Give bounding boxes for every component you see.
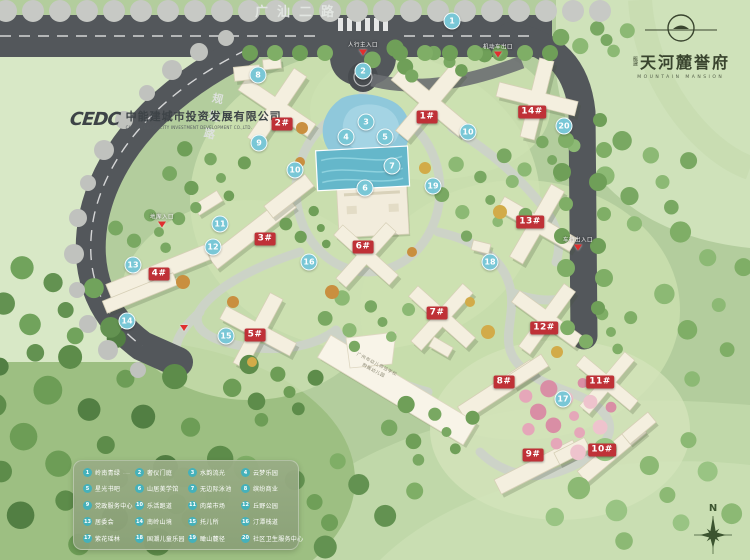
developer-logo: CEDC 中能建城市投资发展有限公司 CHINA ENERGY CITY INV… [70, 108, 282, 130]
legend-item-14: 14南岭山境 [135, 517, 172, 526]
legend-item-label: 托儿所 [200, 517, 219, 526]
amenity-marker-16: 16 [301, 254, 318, 271]
building-label-13: 13# [516, 216, 544, 229]
legend-item-number: 10 [135, 501, 144, 510]
legend-item-11: 11肉菜市场 [188, 501, 225, 510]
amenity-marker-1: 1 [444, 13, 461, 30]
legend-item-label: 山居美学馆 [147, 484, 179, 493]
entrance-label: 地库入口 [150, 213, 174, 221]
building-label-4: 4# [149, 268, 170, 281]
legend-item-note: …… [123, 471, 130, 475]
legend-item-label: 肉菜市场 [200, 501, 225, 510]
entrance-marker: 车行出入口 [563, 236, 593, 251]
amenity-marker-10: 10 [460, 124, 477, 141]
amenity-marker-8: 8 [250, 67, 267, 84]
site-plan: 广汕二路 规划路 CEDC 中能建城市投资发展有限公司 CHINA ENERGY… [0, 0, 750, 560]
legend-item-number: 9 [83, 501, 92, 510]
amenity-marker-12: 12 [205, 239, 222, 256]
legend-item-7: 7无边际泳池 [188, 484, 232, 493]
developer-name-cn: 中能建城市投资发展有限公司 [126, 108, 282, 124]
legend-item-label: 云梦乐园 [253, 468, 278, 477]
entrance-arrow-icon [158, 222, 166, 228]
amenity-marker-14: 14 [119, 313, 136, 330]
project-name: 天河麓誉府 [640, 49, 730, 73]
compass: N [692, 503, 734, 556]
legend-item-10: 10乐活跑道 [135, 501, 172, 510]
legend-item-2: 2奢仪门庭 [135, 468, 172, 477]
entrance-arrow-icon [359, 50, 367, 56]
entrance-marker: 机动车出口 [483, 43, 513, 58]
legend-item-label: 国潮儿童乐园 [147, 534, 185, 543]
legend-item-number: 16 [241, 517, 250, 526]
legend-item-label: 岭南青绿 [95, 468, 120, 477]
amenity-marker-10: 10 [287, 162, 304, 179]
building-label-8: 8# [494, 376, 515, 389]
project-emblem-icon [643, 10, 719, 46]
legend-item-number: 14 [135, 517, 144, 526]
legend-item-label: 星光书吧 [95, 484, 120, 493]
entrance-label: 人行主入口 [348, 41, 378, 49]
legend-item-9: 9党政服务中心 [83, 501, 133, 510]
legend-item-13: 13居委会 [83, 517, 114, 526]
building-label-14: 14# [518, 106, 546, 119]
entrance-arrow-icon [180, 325, 188, 331]
legend-item-number: 15 [188, 517, 197, 526]
amenity-marker-15: 15 [218, 328, 235, 345]
entrance-marker: 地库入口 [150, 213, 174, 228]
entrance-marker [180, 325, 188, 331]
entrance-arrow-icon [574, 245, 582, 251]
legend-item-8: 8缤纷商业 [241, 484, 278, 493]
project-prefix: 能建 [631, 56, 637, 66]
legend-item-number: 5 [83, 484, 92, 493]
legend-item-label: 紫花瑶林 [95, 534, 120, 543]
legend-item-number: 2 [135, 468, 144, 477]
legend-item-label: 汀潭栈道 [253, 517, 278, 526]
legend-item-1: 1岭南青绿…… [83, 468, 130, 477]
entrance-marker: 人行主入口 [348, 41, 378, 56]
legend-item-15: 15托儿所 [188, 517, 219, 526]
developer-logo-mark: CEDC [69, 109, 121, 130]
amenity-marker-5: 5 [377, 129, 394, 146]
building-label-3: 3# [255, 233, 276, 246]
legend-item-label: 瞰山麓径 [200, 534, 225, 543]
compass-n-label: N [709, 503, 717, 514]
legend: 1岭南青绿……2奢仪门庭3水韵流光4云梦乐园5星光书吧6山居美学馆7无边际泳池8… [73, 460, 299, 550]
legend-item-number: 4 [241, 468, 250, 477]
building-label-5: 5# [245, 329, 266, 342]
entrance-arrow-icon [494, 52, 502, 58]
legend-item-number: 6 [135, 484, 144, 493]
building-label-10: 10# [588, 444, 616, 457]
legend-item-label: 居委会 [95, 517, 114, 526]
amenity-marker-20: 20 [556, 118, 573, 135]
amenity-marker-11: 11 [212, 216, 229, 233]
legend-item-number: 13 [83, 517, 92, 526]
legend-item-5: 5星光书吧 [83, 484, 120, 493]
amenity-marker-19: 19 [425, 178, 442, 195]
legend-item-17: 17紫花瑶林 [83, 534, 120, 543]
legend-item-3: 3水韵流光 [188, 468, 225, 477]
legend-item-label: 奢仪门庭 [147, 468, 172, 477]
legend-item-number: 17 [83, 534, 92, 543]
building-label-7: 7# [427, 307, 448, 320]
legend-item-number: 7 [188, 484, 197, 493]
legend-item-label: 丘野公园 [253, 501, 278, 510]
legend-item-19: 19瞰山麓径 [188, 534, 225, 543]
amenity-marker-13: 13 [125, 257, 142, 274]
amenity-marker-18: 18 [482, 254, 499, 271]
legend-item-number: 1 [83, 468, 92, 477]
amenity-marker-3: 3 [358, 114, 375, 131]
entrance-label: 机动车出口 [483, 43, 513, 51]
legend-item-number: 3 [188, 468, 197, 477]
legend-item-number: 8 [241, 484, 250, 493]
legend-item-number: 11 [188, 501, 197, 510]
legend-item-number: 20 [241, 534, 250, 543]
legend-item-label: 乐活跑道 [147, 501, 172, 510]
legend-item-16: 16汀潭栈道 [241, 517, 278, 526]
amenity-marker-6: 6 [357, 180, 374, 197]
amenity-marker-4: 4 [338, 129, 355, 146]
legend-item-label: 南岭山境 [147, 517, 172, 526]
developer-name-en: CHINA ENERGY CITY INVESTMENT DEVELOPMENT… [126, 125, 282, 130]
legend-item-6: 6山居美学馆 [135, 484, 179, 493]
legend-item-label: 缤纷商业 [253, 484, 278, 493]
compass-rose-icon [692, 514, 734, 556]
legend-item-number: 18 [135, 534, 144, 543]
legend-item-number: 19 [188, 534, 197, 543]
building-label-11: 11# [586, 376, 614, 389]
building-label-2: 2# [272, 118, 293, 131]
project-name-en: MOUNTAIN MANSION [637, 75, 724, 80]
legend-item-18: 18国潮儿童乐园 [135, 534, 185, 543]
building-label-6: 6# [353, 241, 374, 254]
building-label-1: 1# [417, 111, 438, 124]
project-logo: 能建 天河麓誉府 MOUNTAIN MANSION [631, 10, 730, 80]
amenity-marker-2: 2 [355, 63, 372, 80]
legend-item-number: 12 [241, 501, 250, 510]
building-label-12: 12# [530, 322, 558, 335]
entrance-label: 车行出入口 [563, 236, 593, 244]
building-label-9: 9# [523, 449, 544, 462]
legend-item-20: 20社区卫生服务中心 [241, 534, 303, 543]
legend-item-4: 4云梦乐园 [241, 468, 278, 477]
amenity-marker-7: 7 [384, 158, 401, 175]
legend-item-12: 12丘野公园 [241, 501, 278, 510]
amenity-marker-9: 9 [251, 135, 268, 152]
amenity-marker-17: 17 [555, 391, 572, 408]
legend-item-label: 党政服务中心 [95, 501, 133, 510]
legend-item-label: 水韵流光 [200, 468, 225, 477]
legend-item-label: 社区卫生服务中心 [253, 534, 303, 543]
road-name-top: 广汕二路 [255, 1, 343, 20]
legend-item-label: 无边际泳池 [200, 484, 232, 493]
